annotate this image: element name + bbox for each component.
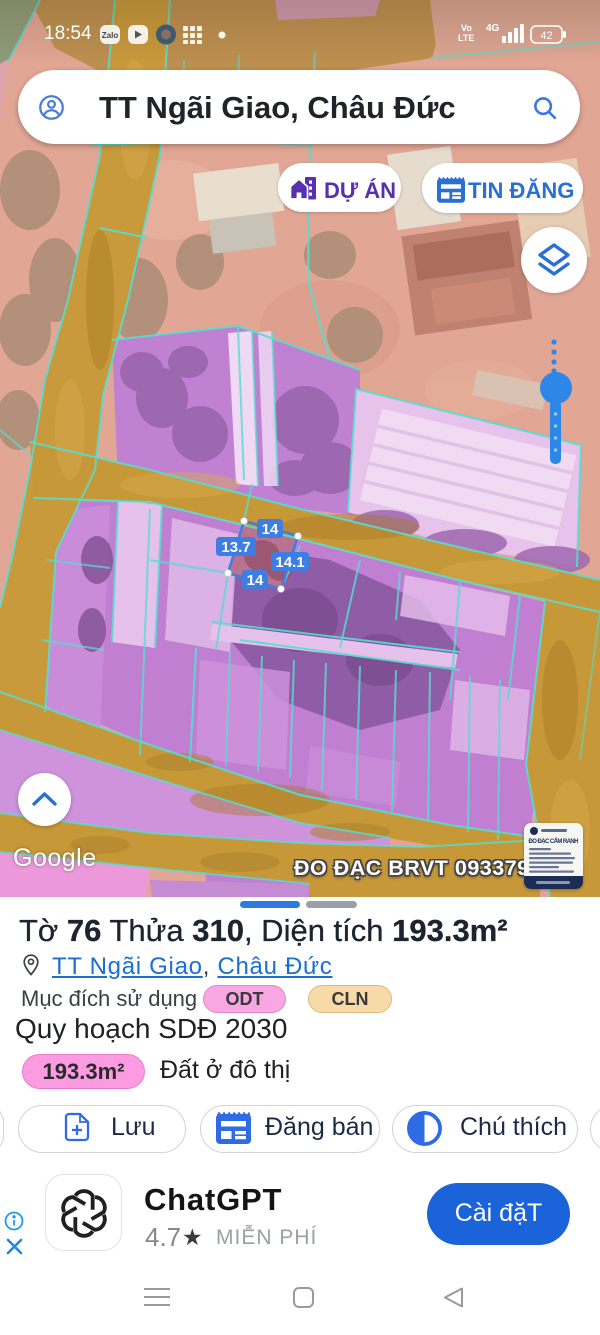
svg-text:LTE: LTE <box>458 33 474 43</box>
svg-text:ĐO ĐẠC CẮM RANH: ĐO ĐẠC CẮM RANH <box>529 837 579 845</box>
svg-text:14: 14 <box>247 572 264 589</box>
svg-text:13.7: 13.7 <box>221 539 250 556</box>
svg-text:Zalo: Zalo <box>102 31 119 40</box>
svg-text:42: 42 <box>540 30 552 42</box>
svg-text:4G: 4G <box>486 23 500 34</box>
svg-text:14: 14 <box>262 521 279 538</box>
svg-text:14.1: 14.1 <box>275 554 304 571</box>
svg-text:Vo: Vo <box>461 23 472 33</box>
